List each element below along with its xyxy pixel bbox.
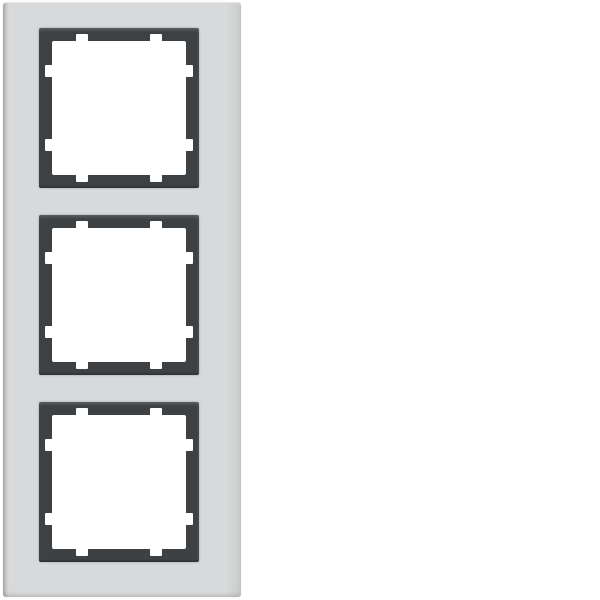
mounting-notch [183,439,193,451]
mounting-notch [45,252,55,264]
mounting-notch [45,326,55,338]
mounting-notch [150,172,162,182]
mounting-notch [150,359,162,369]
cover-frame-plate [3,2,241,597]
mounting-notch [45,513,55,525]
mounting-notch [45,65,55,77]
mounting-notch [76,359,88,369]
mounting-notch [76,221,88,231]
mounting-notch [150,408,162,418]
mounting-notch [45,439,55,451]
mounting-notch [183,326,193,338]
mounting-notch [150,221,162,231]
mounting-notch [150,34,162,44]
mounting-notch [183,252,193,264]
mounting-notch [45,139,55,151]
mounting-notch [183,513,193,525]
module-opening-2 [52,228,186,362]
mounting-notch [76,408,88,418]
module-frame-1 [39,28,199,188]
mounting-notch [76,34,88,44]
mounting-notch [150,546,162,556]
module-frame-2 [39,215,199,375]
mounting-notch [76,546,88,556]
module-opening-1 [52,41,186,175]
mounting-notch [183,139,193,151]
mounting-notch [76,172,88,182]
mounting-notch [183,65,193,77]
module-frame-3 [39,402,199,562]
module-opening-3 [52,415,186,549]
